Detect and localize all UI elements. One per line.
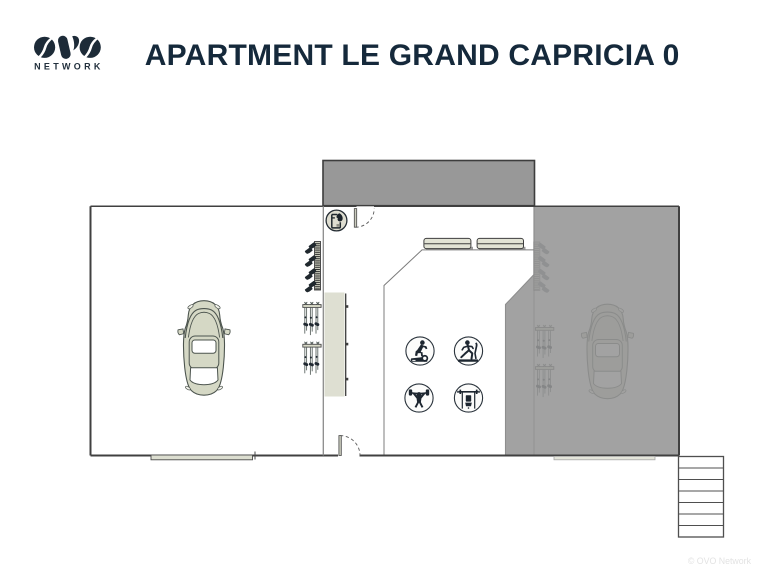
svg-text:NETWORK: NETWORK — [34, 62, 104, 72]
svg-text:© OVO Network: © OVO Network — [688, 556, 752, 566]
svg-text:APARTMENT LE GRAND CAPRICIA 0: APARTMENT LE GRAND CAPRICIA 0 — [145, 39, 680, 72]
